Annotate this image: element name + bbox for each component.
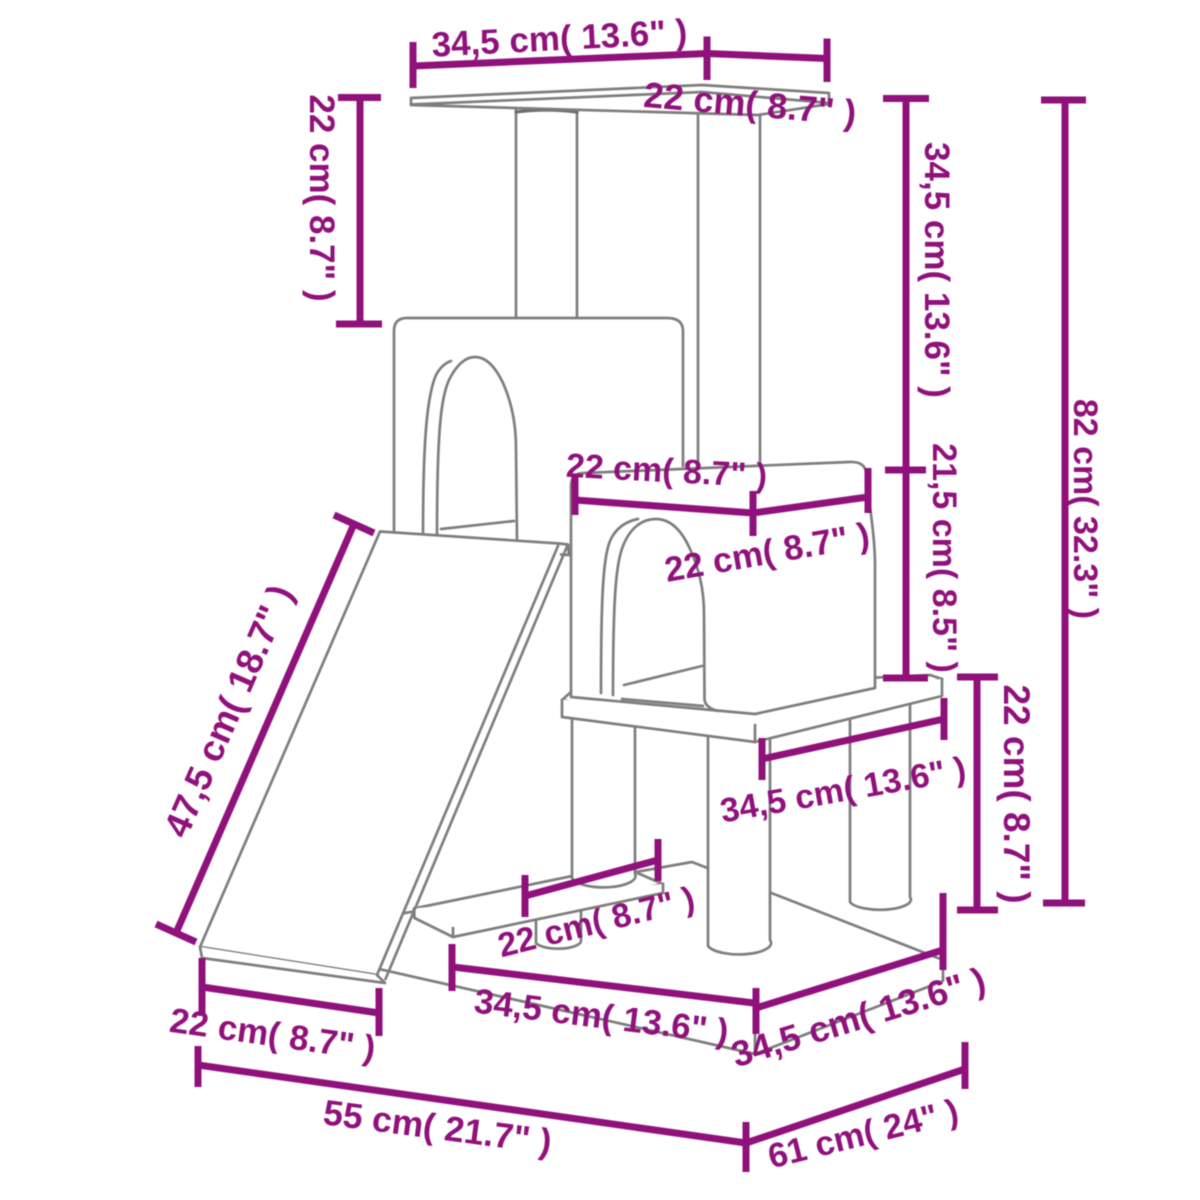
svg-text:34,5 cm( 13.6" ): 34,5 cm( 13.6" ) bbox=[917, 142, 956, 398]
svg-text:21,5 cm( 8.5" ): 21,5 cm( 8.5" ) bbox=[925, 443, 963, 673]
svg-text:22 cm( 8.7" ): 22 cm( 8.7" ) bbox=[302, 94, 341, 301]
svg-text:22 cm( 8.7" ): 22 cm( 8.7" ) bbox=[996, 684, 1037, 903]
svg-text:82 cm( 32.3" ): 82 cm( 32.3" ) bbox=[1066, 399, 1104, 619]
